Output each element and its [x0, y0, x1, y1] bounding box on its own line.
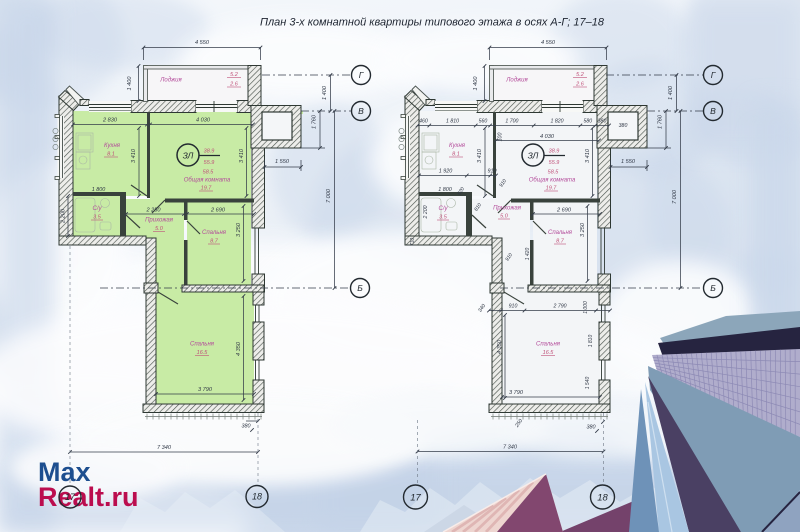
svg-text:17: 17: [65, 492, 76, 502]
svg-text:Общая комната: Общая комната: [529, 178, 576, 184]
svg-text:18: 18: [252, 492, 262, 502]
svg-text:3 410: 3 410: [131, 148, 137, 163]
svg-text:Кухня: Кухня: [449, 143, 466, 149]
svg-text:8.7: 8.7: [210, 239, 219, 245]
svg-text:Спальня: Спальня: [536, 342, 561, 348]
svg-text:2 830: 2 830: [102, 118, 118, 124]
svg-text:18: 18: [597, 492, 608, 503]
svg-text:Кухня: Кухня: [104, 143, 121, 149]
svg-text:План 3-х комнатной квартиры ти: План 3-х комнатной квартиры типового эта…: [260, 17, 605, 29]
svg-text:3 410: 3 410: [239, 148, 245, 163]
svg-text:1 540: 1 540: [585, 377, 591, 390]
svg-text:910: 910: [488, 169, 497, 175]
svg-text:1 810: 1 810: [588, 335, 594, 348]
svg-text:560: 560: [479, 119, 488, 125]
svg-text:Общая комната: Общая комната: [184, 178, 231, 184]
svg-text:2.6: 2.6: [229, 82, 239, 88]
svg-text:38.9: 38.9: [204, 149, 215, 155]
svg-text:580: 580: [583, 119, 592, 125]
svg-text:2 690: 2 690: [210, 208, 226, 214]
svg-text:5.2: 5.2: [230, 72, 238, 78]
svg-text:2 200: 2 200: [61, 208, 67, 224]
svg-text:1 550: 1 550: [621, 159, 636, 165]
svg-text:1 820: 1 820: [551, 119, 564, 125]
svg-text:58.5: 58.5: [203, 170, 215, 176]
svg-text:Спальня: Спальня: [202, 230, 227, 236]
svg-text:Б: Б: [710, 283, 716, 293]
svg-text:1 000: 1 000: [583, 301, 589, 314]
svg-text:1 700: 1 700: [505, 119, 518, 125]
svg-text:380: 380: [587, 425, 596, 431]
svg-text:С/у: С/у: [93, 206, 103, 212]
svg-text:58.5: 58.5: [548, 170, 560, 176]
svg-text:3 790: 3 790: [509, 390, 524, 396]
svg-text:3 410: 3 410: [477, 148, 483, 163]
svg-text:4 350: 4 350: [236, 341, 242, 356]
svg-text:8.1: 8.1: [452, 152, 460, 158]
svg-text:3 250: 3 250: [236, 222, 242, 237]
svg-text:Прихожая: Прихожая: [493, 206, 522, 212]
svg-text:1 760: 1 760: [658, 114, 664, 129]
svg-text:55.9: 55.9: [204, 160, 215, 166]
svg-text:1 810: 1 810: [446, 119, 459, 125]
svg-text:Б: Б: [357, 283, 363, 293]
svg-text:2.6: 2.6: [575, 82, 585, 88]
svg-text:В: В: [710, 106, 716, 116]
svg-text:380: 380: [619, 123, 628, 129]
svg-text:4 350: 4 350: [497, 339, 503, 354]
svg-text:1 400: 1 400: [668, 85, 674, 100]
svg-text:8.1: 8.1: [107, 152, 115, 158]
svg-text:3 410: 3 410: [585, 148, 591, 163]
svg-text:4 030: 4 030: [540, 134, 555, 140]
svg-text:7 340: 7 340: [503, 445, 518, 451]
svg-text:16.5: 16.5: [197, 350, 209, 356]
svg-text:Realt.ru: Realt.ru: [38, 482, 139, 512]
svg-text:2 790: 2 790: [553, 304, 567, 310]
svg-text:4 550: 4 550: [195, 40, 210, 46]
svg-text:1 420: 1 420: [525, 248, 531, 261]
svg-text:1 920: 1 920: [439, 169, 453, 175]
svg-text:7 000: 7 000: [672, 189, 678, 204]
svg-text:19.7: 19.7: [201, 186, 213, 192]
svg-text:3.5: 3.5: [93, 215, 102, 221]
svg-text:380: 380: [242, 424, 251, 430]
svg-text:1 800: 1 800: [92, 187, 106, 193]
svg-text:4 550: 4 550: [541, 40, 556, 46]
svg-text:С/у: С/у: [439, 206, 449, 212]
svg-text:3 250: 3 250: [580, 222, 586, 237]
svg-text:2 200: 2 200: [423, 205, 429, 219]
svg-text:16.5: 16.5: [543, 350, 555, 356]
svg-text:8.7: 8.7: [556, 239, 565, 245]
svg-text:2 690: 2 690: [556, 208, 572, 214]
svg-text:19.7: 19.7: [546, 186, 558, 192]
svg-text:7 340: 7 340: [157, 445, 172, 451]
svg-text:1 800: 1 800: [438, 187, 452, 193]
svg-text:380: 380: [598, 119, 607, 125]
svg-text:1 400: 1 400: [322, 85, 328, 100]
svg-text:38.9: 38.9: [549, 149, 560, 155]
svg-text:5.0: 5.0: [500, 214, 509, 220]
svg-text:7 000: 7 000: [326, 188, 332, 203]
svg-text:Лоджия: Лоджия: [505, 78, 528, 84]
svg-text:100: 100: [498, 133, 504, 142]
svg-text:ЗЛ: ЗЛ: [528, 151, 539, 161]
svg-text:ЗЛ: ЗЛ: [183, 151, 194, 161]
svg-text:Спальня: Спальня: [190, 342, 215, 348]
svg-text:1 760: 1 760: [312, 114, 318, 129]
svg-text:1 550: 1 550: [275, 159, 290, 165]
svg-text:910: 910: [509, 304, 518, 310]
svg-text:Прихожая: Прихожая: [145, 218, 174, 224]
svg-text:710: 710: [410, 238, 416, 247]
svg-text:1 400: 1 400: [473, 76, 479, 91]
svg-text:2 250: 2 250: [146, 208, 162, 214]
svg-text:1 400: 1 400: [127, 76, 133, 91]
svg-text:3 790: 3 790: [198, 387, 213, 393]
svg-text:5.0: 5.0: [155, 226, 164, 232]
svg-text:Лоджия: Лоджия: [159, 78, 182, 84]
svg-text:4 030: 4 030: [196, 118, 211, 124]
svg-text:55.9: 55.9: [549, 160, 560, 166]
svg-text:17: 17: [410, 492, 421, 503]
svg-text:Спальня: Спальня: [548, 230, 573, 236]
svg-text:3.5: 3.5: [439, 215, 448, 221]
svg-text:5.2: 5.2: [576, 72, 584, 78]
svg-text:460: 460: [419, 119, 428, 125]
svg-text:В: В: [358, 106, 364, 116]
